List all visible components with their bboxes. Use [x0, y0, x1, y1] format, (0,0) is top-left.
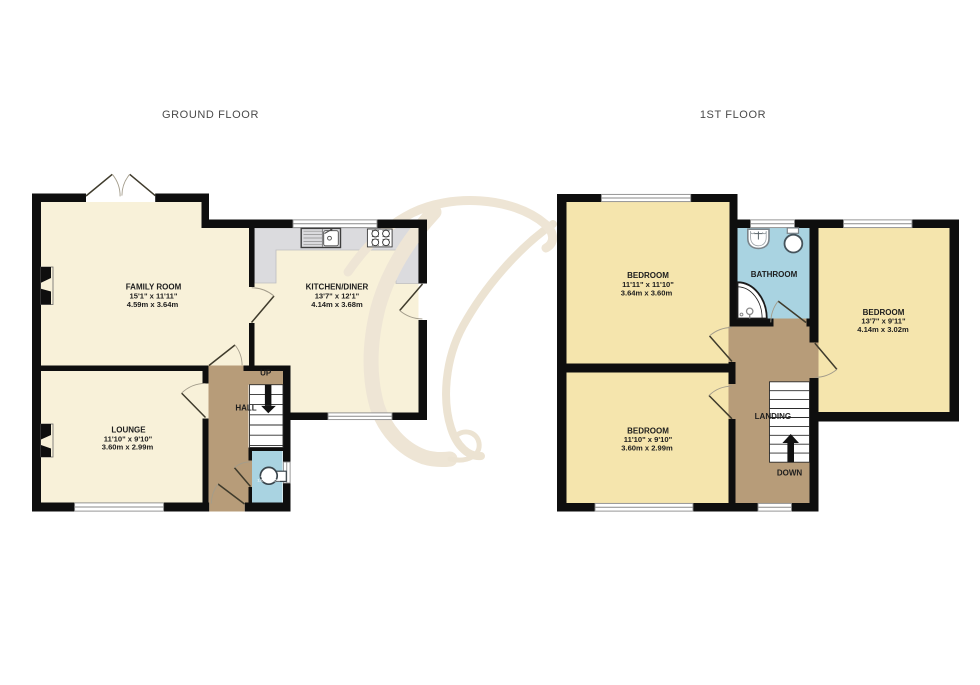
svg-text:WC: WC: [266, 470, 272, 474]
svg-text:3.64m x 3.60m: 3.64m x 3.60m: [621, 289, 673, 298]
svg-text:BATHROOM: BATHROOM: [751, 270, 798, 279]
svg-text:4.14m x 3.02m: 4.14m x 3.02m: [857, 325, 909, 334]
svg-text:LANDING: LANDING: [755, 412, 791, 421]
svg-text:LOUNGE: LOUNGE: [111, 426, 146, 435]
svg-text:UP: UP: [260, 369, 272, 378]
svg-text:1.35m x 1.15m: 1.35m x 1.15m: [257, 479, 279, 483]
svg-text:DOWN: DOWN: [777, 469, 803, 478]
svg-text:1ST FLOOR: 1ST FLOOR: [700, 109, 766, 121]
svg-text:4.14m x 3.68m: 4.14m x 3.68m: [311, 300, 363, 309]
svg-text:3.60m x 2.99m: 3.60m x 2.99m: [102, 443, 154, 452]
svg-text:FAMILY ROOM: FAMILY ROOM: [126, 283, 182, 292]
svg-text:KITCHEN/DINER: KITCHEN/DINER: [306, 283, 369, 292]
svg-text:3.60m x 2.99m: 3.60m x 2.99m: [621, 443, 673, 452]
svg-text:4.59m x 3.64m: 4.59m x 3.64m: [127, 300, 179, 309]
svg-text:BEDROOM: BEDROOM: [627, 271, 669, 280]
svg-text:GROUND FLOOR: GROUND FLOOR: [162, 109, 259, 121]
svg-text:HALL: HALL: [235, 404, 256, 413]
